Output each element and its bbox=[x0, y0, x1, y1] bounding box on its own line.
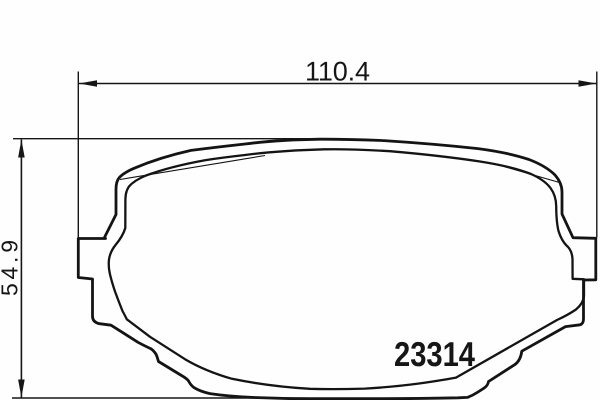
svg-text:23314: 23314 bbox=[394, 336, 475, 374]
svg-text:110.4: 110.4 bbox=[305, 56, 370, 86]
svg-text:54.9: 54.9 bbox=[0, 240, 23, 296]
